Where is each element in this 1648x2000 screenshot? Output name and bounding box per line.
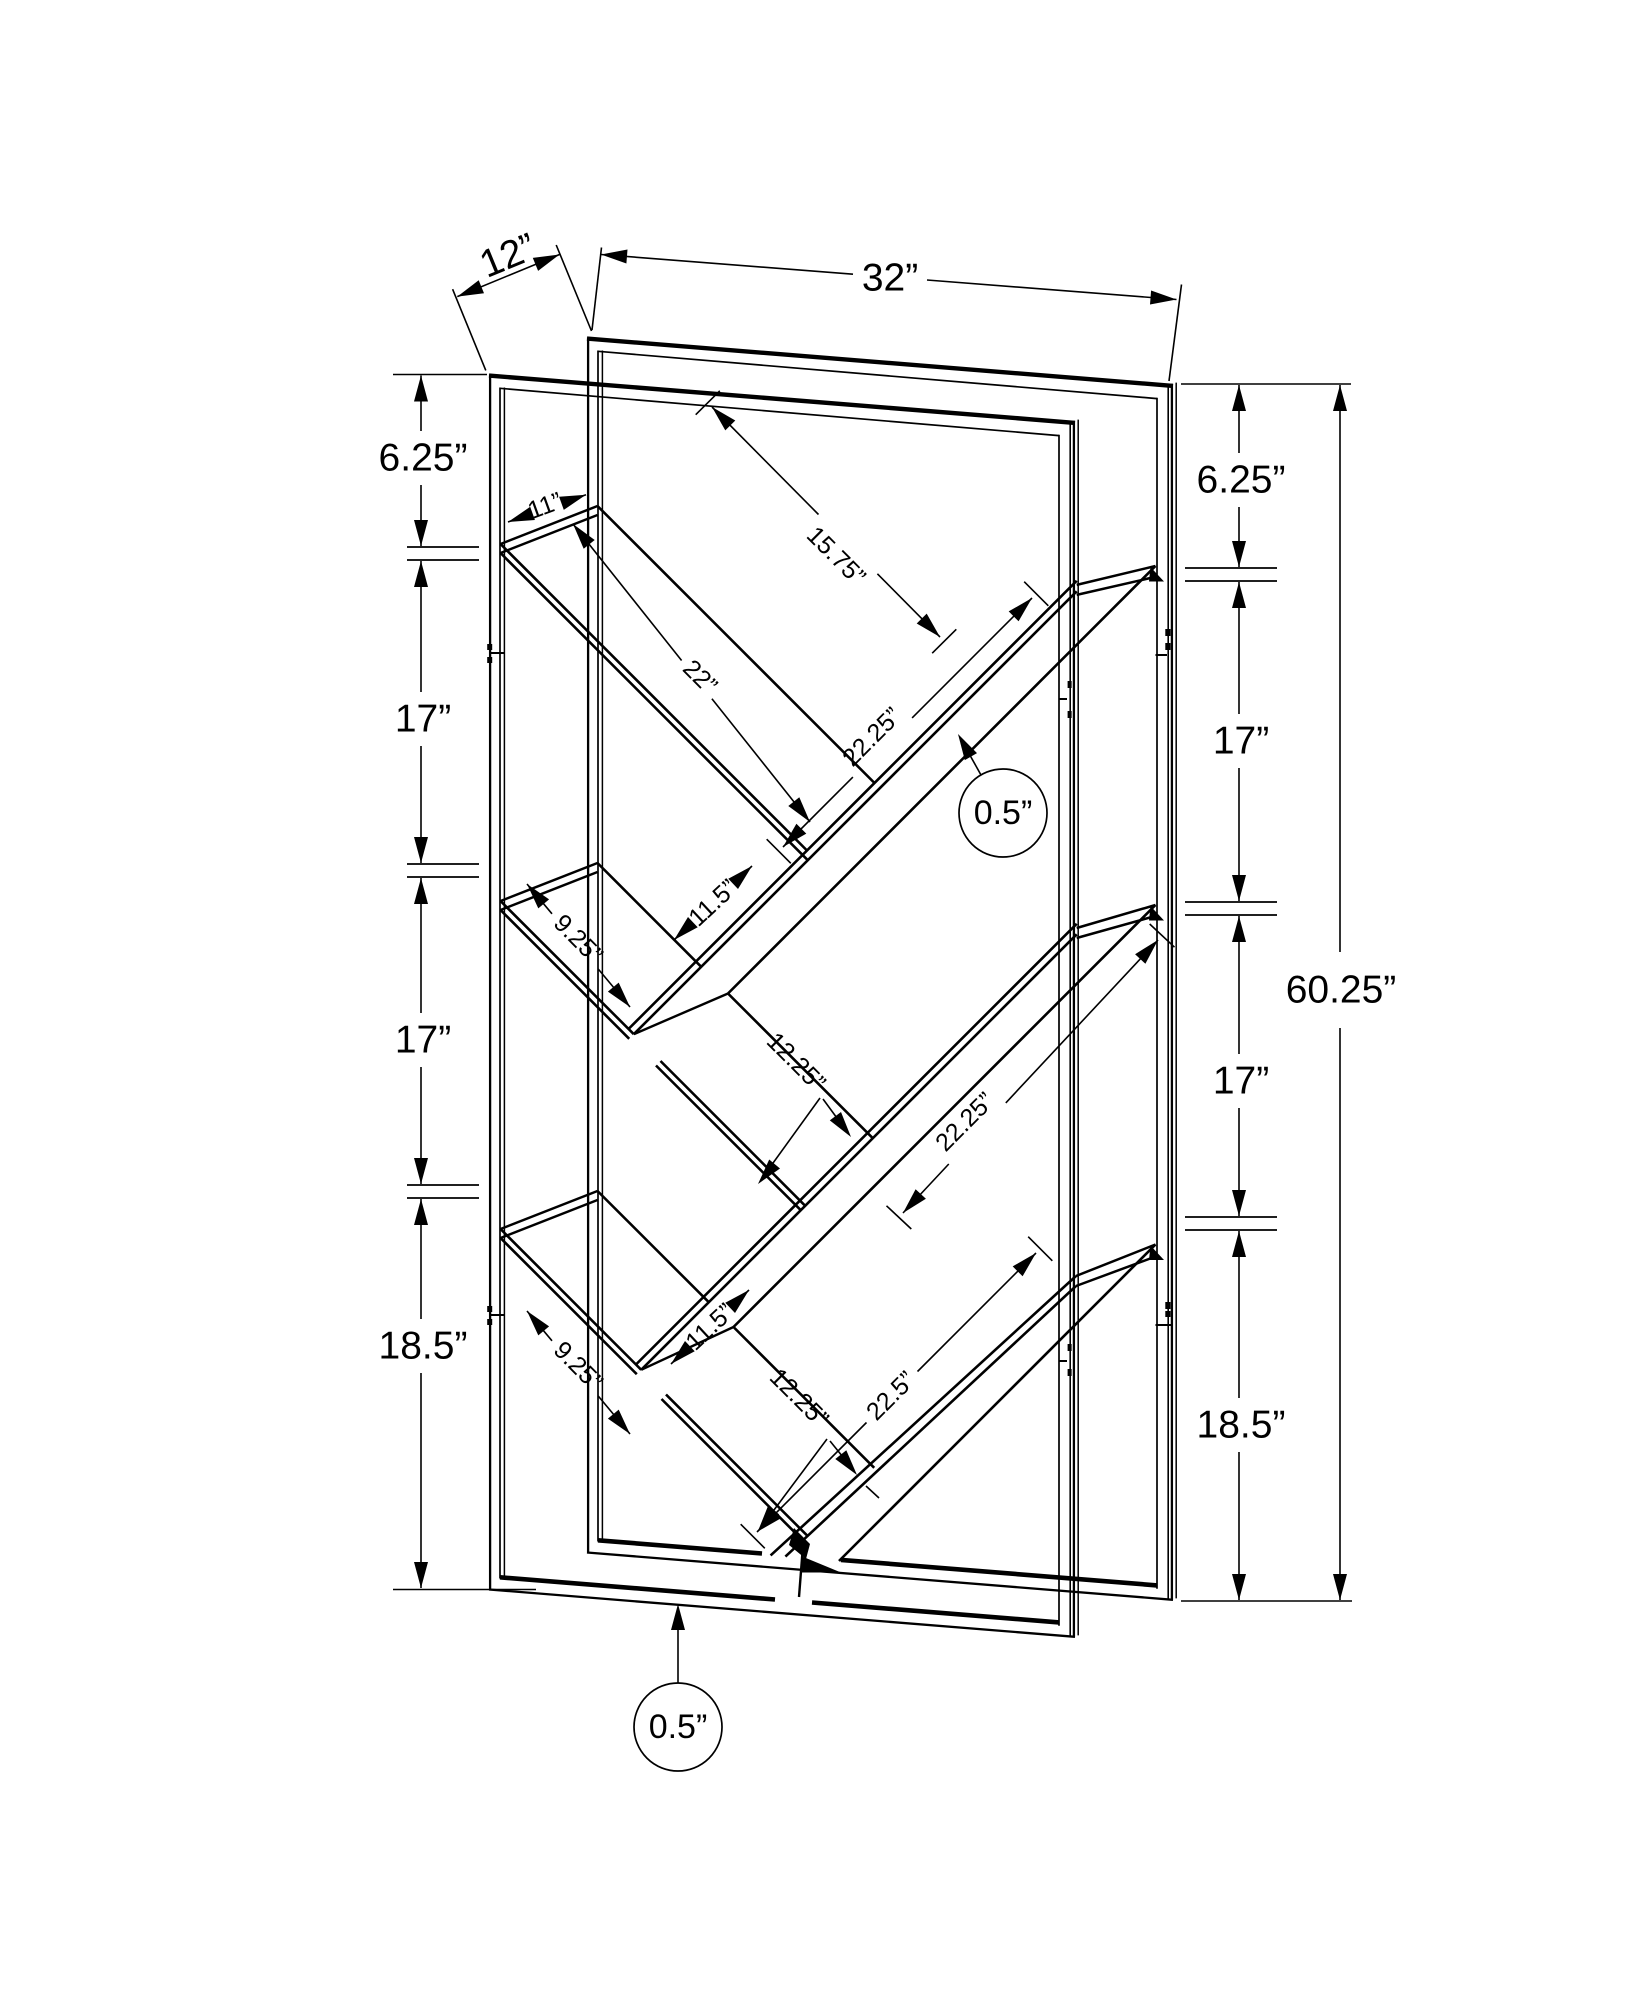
svg-text:60.25”: 60.25”	[1286, 969, 1397, 1012]
svg-text:6.25”: 6.25”	[1197, 459, 1286, 502]
svg-text:6.25”: 6.25”	[379, 437, 468, 480]
svg-text:32”: 32”	[862, 257, 918, 300]
svg-text:18.5”: 18.5”	[379, 1325, 468, 1368]
svg-text:0.5”: 0.5”	[974, 794, 1033, 832]
svg-text:0.5”: 0.5”	[649, 1708, 708, 1746]
svg-text:17”: 17”	[1213, 720, 1269, 763]
svg-text:18.5”: 18.5”	[1197, 1404, 1286, 1447]
svg-text:17”: 17”	[395, 698, 451, 741]
svg-text:17”: 17”	[395, 1019, 451, 1062]
svg-text:17”: 17”	[1213, 1060, 1269, 1103]
